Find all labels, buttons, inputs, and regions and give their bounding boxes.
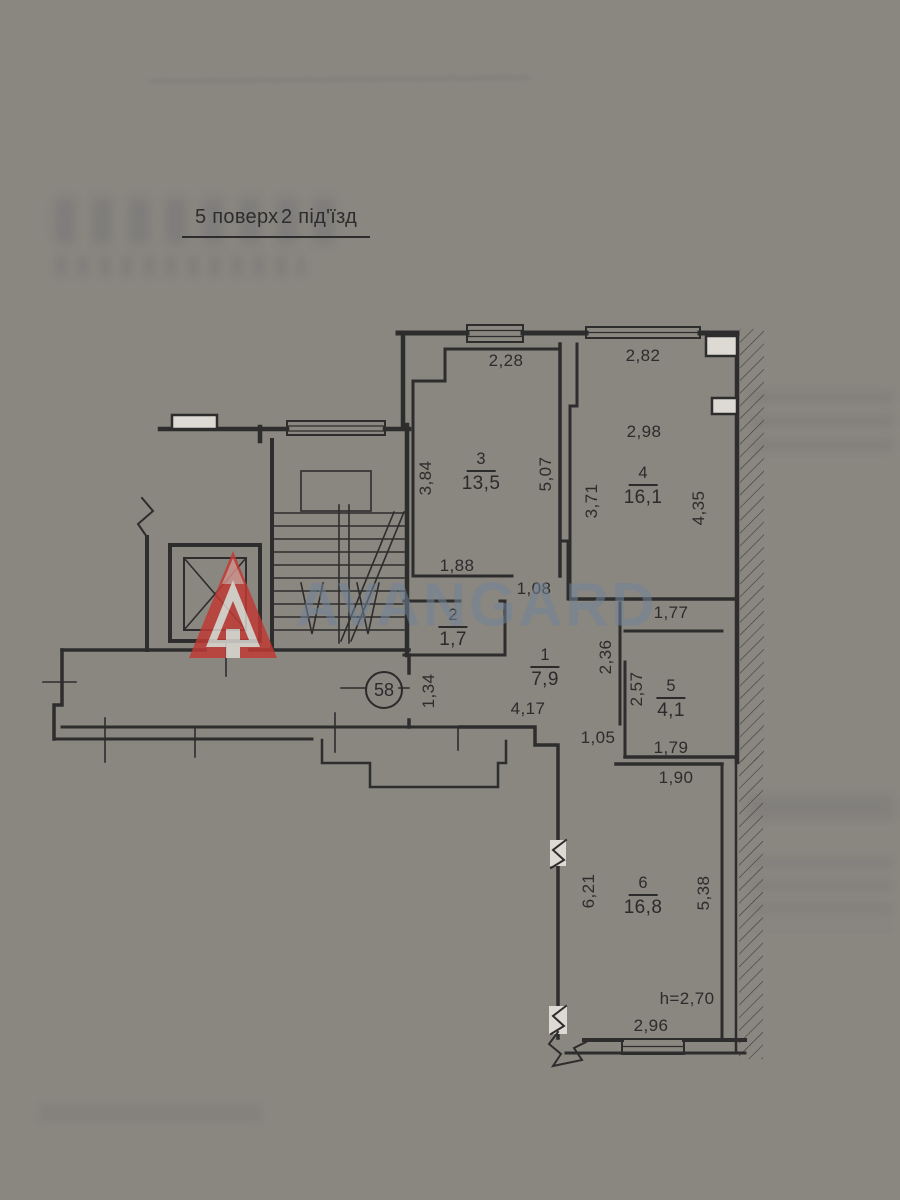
watermark-brand-text: AVANGARD [296,569,658,639]
elevator-shaft [170,545,260,676]
wall-break-marks [549,840,586,1066]
apartment-number-badge: 58 [365,671,403,709]
scanned-floor-plan-photo: 5 поверх 2 під'їзд [0,0,900,1200]
window-room4 [586,327,700,338]
window-stairwell [287,421,385,435]
window-room3 [467,325,523,342]
elevator-cross [184,558,246,630]
apartment-number: 58 [374,680,394,701]
windows [287,325,700,1054]
exterior-wall-hatching [739,329,764,1059]
